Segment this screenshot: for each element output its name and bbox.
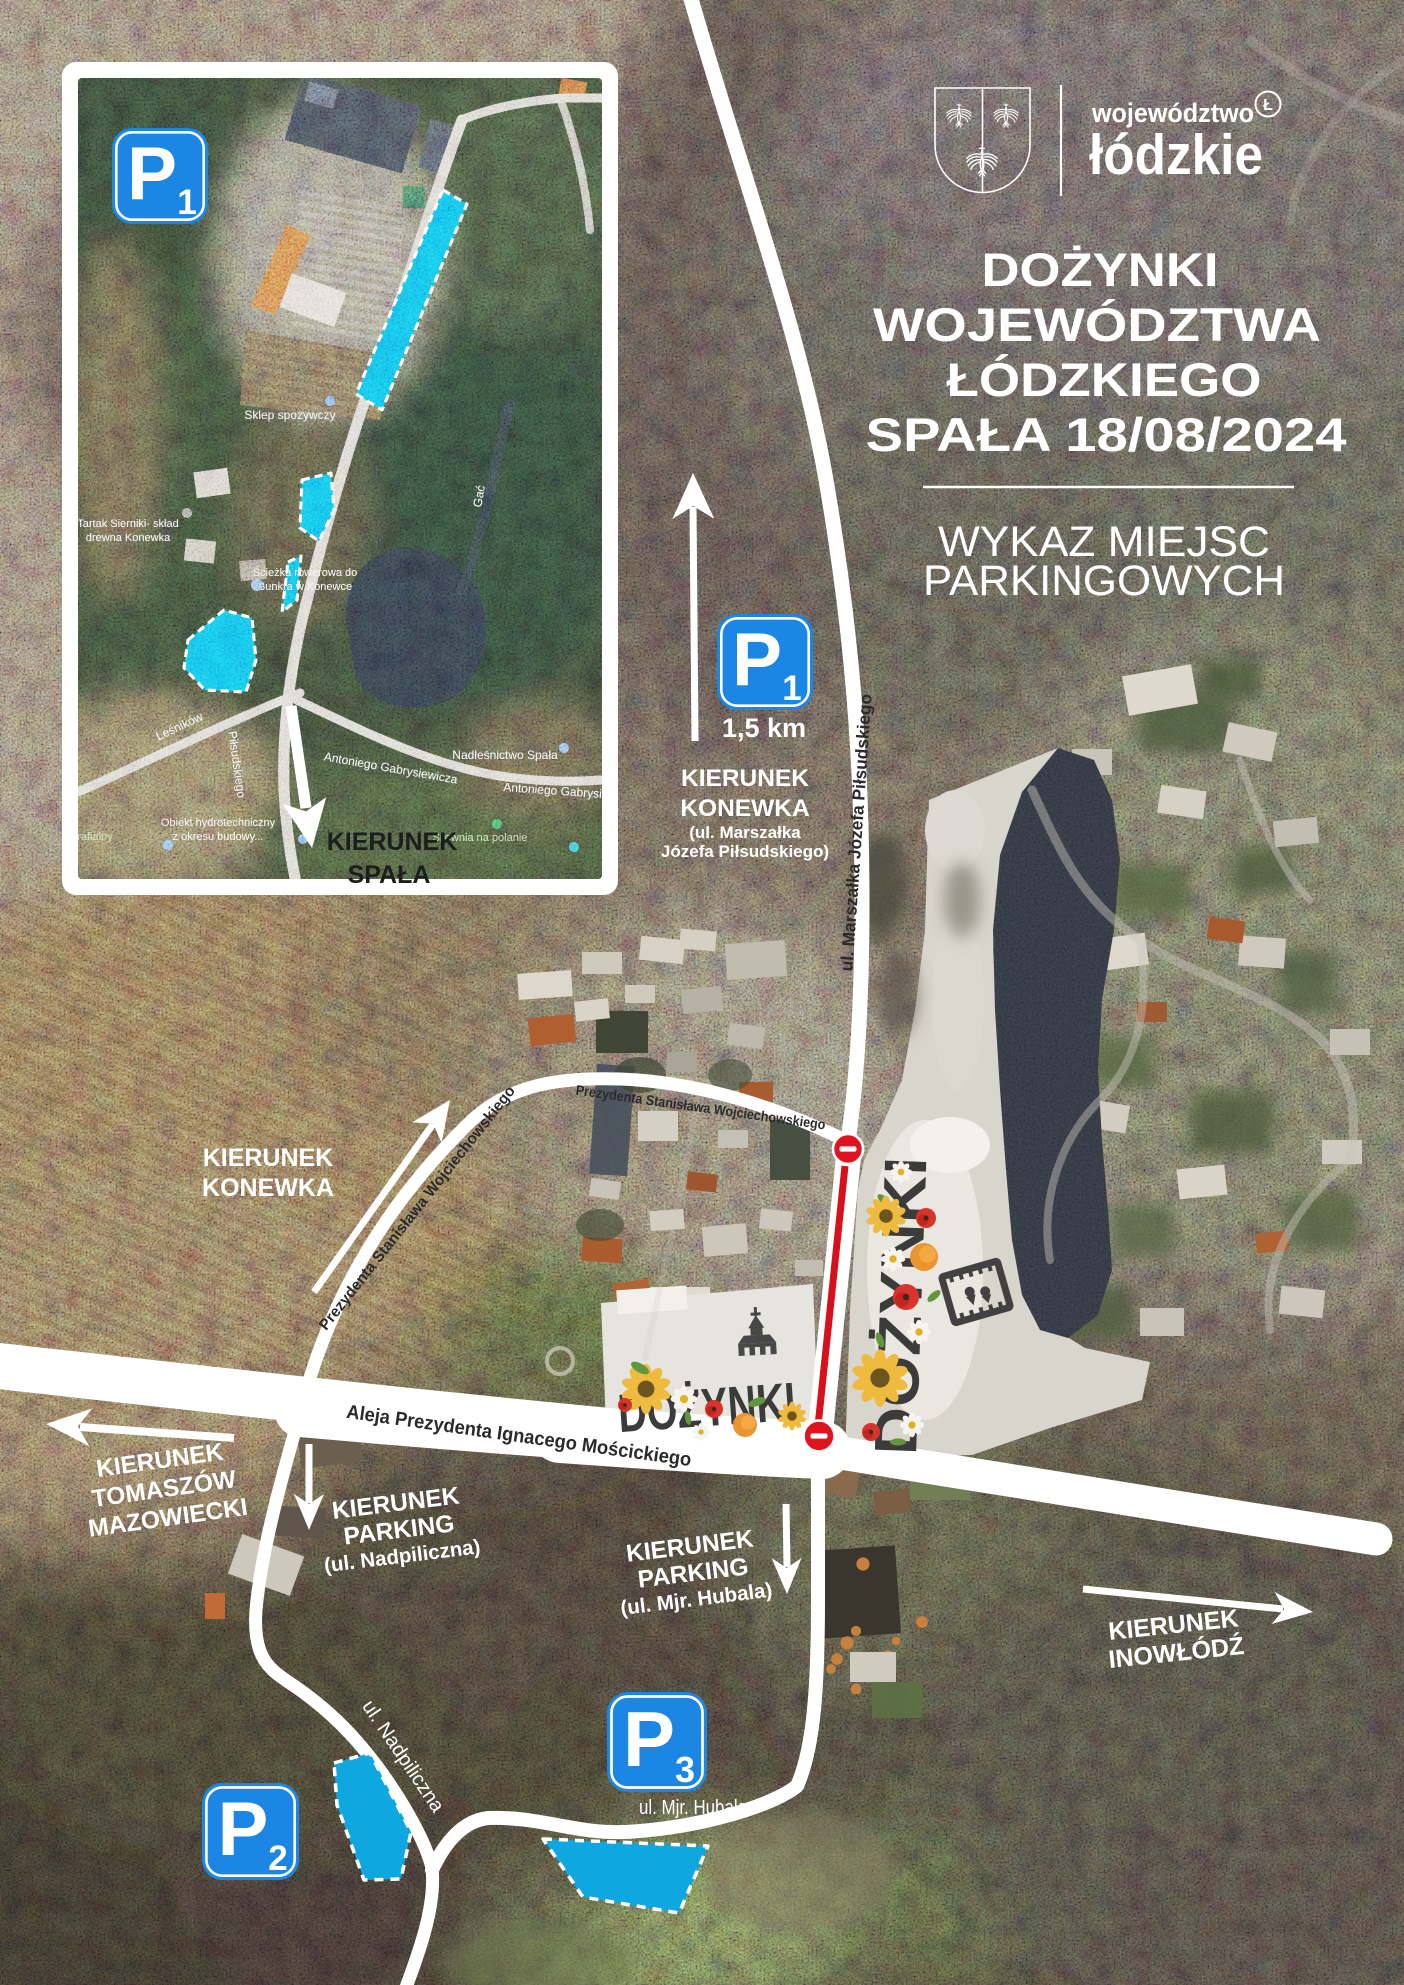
svg-text:3: 3: [675, 1749, 695, 1790]
svg-text:KIERUNEK: KIERUNEK: [681, 765, 809, 792]
svg-text:KONEWKA: KONEWKA: [680, 795, 810, 822]
svg-text:KIERUNEK: KIERUNEK: [203, 1144, 334, 1172]
svg-text:(ul. Marszałka: (ul. Marszałka: [689, 823, 801, 842]
svg-text:1: 1: [782, 669, 801, 708]
svg-text:PARKINGOWYCH: PARKINGOWYCH: [923, 557, 1285, 605]
svg-text:P: P: [127, 131, 177, 215]
svg-text:1,5 km: 1,5 km: [722, 713, 806, 743]
svg-text:P: P: [732, 617, 782, 701]
svg-text:SPAŁA: SPAŁA: [348, 861, 431, 889]
svg-text:2: 2: [268, 1839, 287, 1878]
svg-text:P: P: [623, 1695, 675, 1783]
svg-text:łódzkie: łódzkie: [1089, 123, 1263, 187]
svg-text:P: P: [218, 1787, 269, 1872]
svg-text:Ł: Ł: [1263, 97, 1273, 114]
svg-text:Józefa Piłsudskiego): Józefa Piłsudskiego): [661, 842, 829, 861]
svg-text:ul. Mjr. Hubala: ul. Mjr. Hubala: [639, 1797, 748, 1819]
svg-text:SPAŁA 18/08/2024: SPAŁA 18/08/2024: [866, 408, 1347, 461]
svg-text:DOŻYNKI: DOŻYNKI: [982, 243, 1219, 296]
svg-text:ŁÓDZKIEGO: ŁÓDZKIEGO: [947, 353, 1262, 406]
svg-text:KONEWKA: KONEWKA: [202, 1174, 334, 1202]
svg-text:KIERUNEK: KIERUNEK: [327, 828, 458, 856]
svg-text:1: 1: [177, 183, 196, 222]
svg-text:WOJEWÓDZTWA: WOJEWÓDZTWA: [873, 298, 1321, 351]
